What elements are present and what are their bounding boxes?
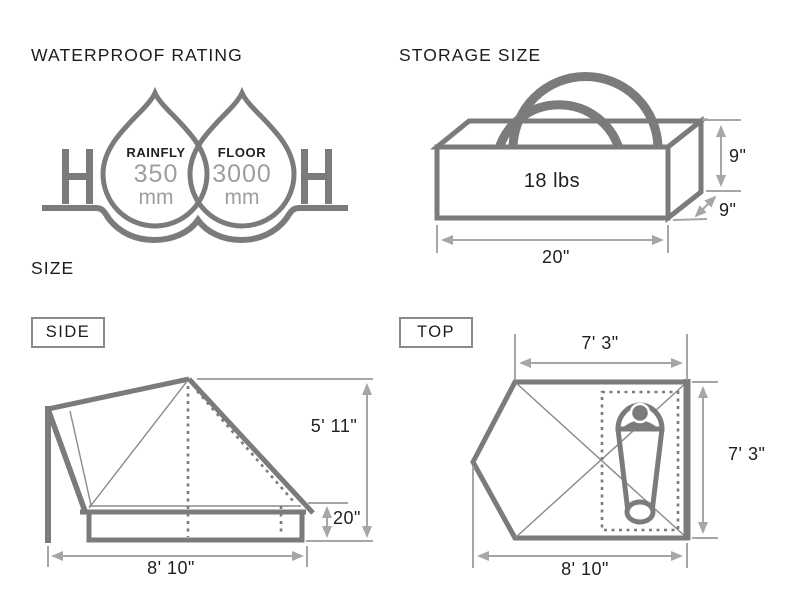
waterline-left-cap (62, 149, 93, 204)
side-view-label: SIDE (31, 317, 105, 348)
floor-rating-unit: mm (225, 187, 260, 208)
floor-rating-value: 3000 (212, 162, 272, 187)
side-view-label-text: SIDE (46, 323, 91, 342)
spec-diagram-graphics (0, 0, 800, 600)
tent-side-icon (48, 379, 313, 543)
water-drop-icon (42, 93, 348, 240)
tent-top-icon (473, 379, 687, 540)
top-view-label-text: TOP (417, 323, 455, 342)
side-width-dimension: 8' 10" (147, 559, 195, 577)
floor-label: FLOOR (218, 146, 267, 159)
storage-bag-icon (437, 77, 701, 219)
side-peak-height-dimension: 5' 11" (311, 417, 358, 435)
top-width-dimension: 8' 10" (561, 560, 609, 578)
rainfly-rating-unit: mm (139, 187, 174, 208)
waterproof-section-title: WATERPROOF RATING (31, 47, 243, 65)
water-wave-line (42, 208, 348, 240)
rainfly-rating-value: 350 (134, 162, 179, 187)
size-section-title: SIZE (31, 260, 74, 278)
rainfly-label: RAINFLY (126, 146, 185, 159)
tent-spec-sheet: WATERPROOF RATING STORAGE SIZE SIZE RAIN… (0, 0, 800, 600)
storage-height-dimension: 9" (729, 147, 746, 165)
top-view-label: TOP (399, 317, 473, 348)
side-base-height-dimension: 20" (333, 509, 361, 527)
storage-width-dimension: 20" (542, 248, 570, 266)
bag-weight-label: 18 lbs (524, 171, 580, 191)
top-depth-dimension: 7' 3" (728, 445, 765, 463)
waterline-right-cap (301, 149, 332, 204)
storage-depth-dimension: 9" (719, 201, 736, 219)
storage-section-title: STORAGE SIZE (399, 47, 541, 65)
top-inner-width-dimension: 7' 3" (581, 334, 618, 352)
